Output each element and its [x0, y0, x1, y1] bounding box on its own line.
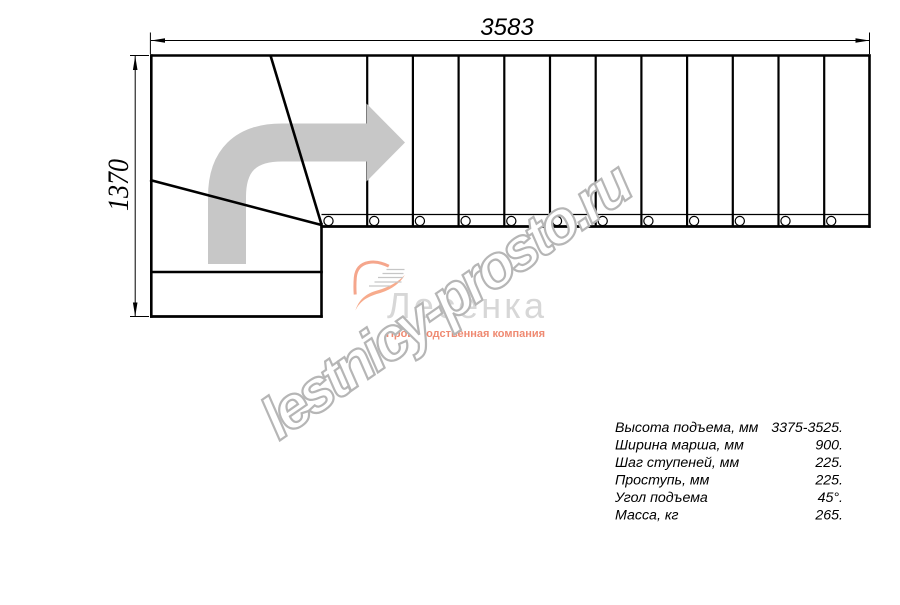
svg-text:Шаг ступеней, мм: Шаг ступеней, мм	[615, 455, 739, 471]
svg-text:Проступь, мм: Проступь, мм	[615, 472, 710, 488]
svg-text:900.: 900.	[815, 437, 843, 453]
svg-text:Ширина марша, мм: Ширина марша, мм	[615, 437, 744, 453]
svg-text:265.: 265.	[814, 507, 843, 523]
svg-text:3375-3525.: 3375-3525.	[771, 420, 843, 436]
svg-text:1370: 1370	[102, 159, 135, 211]
svg-text:Угол подъема: Угол подъема	[614, 490, 708, 506]
svg-text:Высота подъема, мм: Высота подъема, мм	[615, 420, 759, 436]
svg-text:3583: 3583	[480, 14, 534, 41]
svg-text:225.: 225.	[814, 472, 843, 488]
svg-text:225.: 225.	[814, 455, 843, 471]
svg-text:45°.: 45°.	[818, 490, 843, 506]
svg-text:Масса, кг: Масса, кг	[615, 507, 679, 523]
